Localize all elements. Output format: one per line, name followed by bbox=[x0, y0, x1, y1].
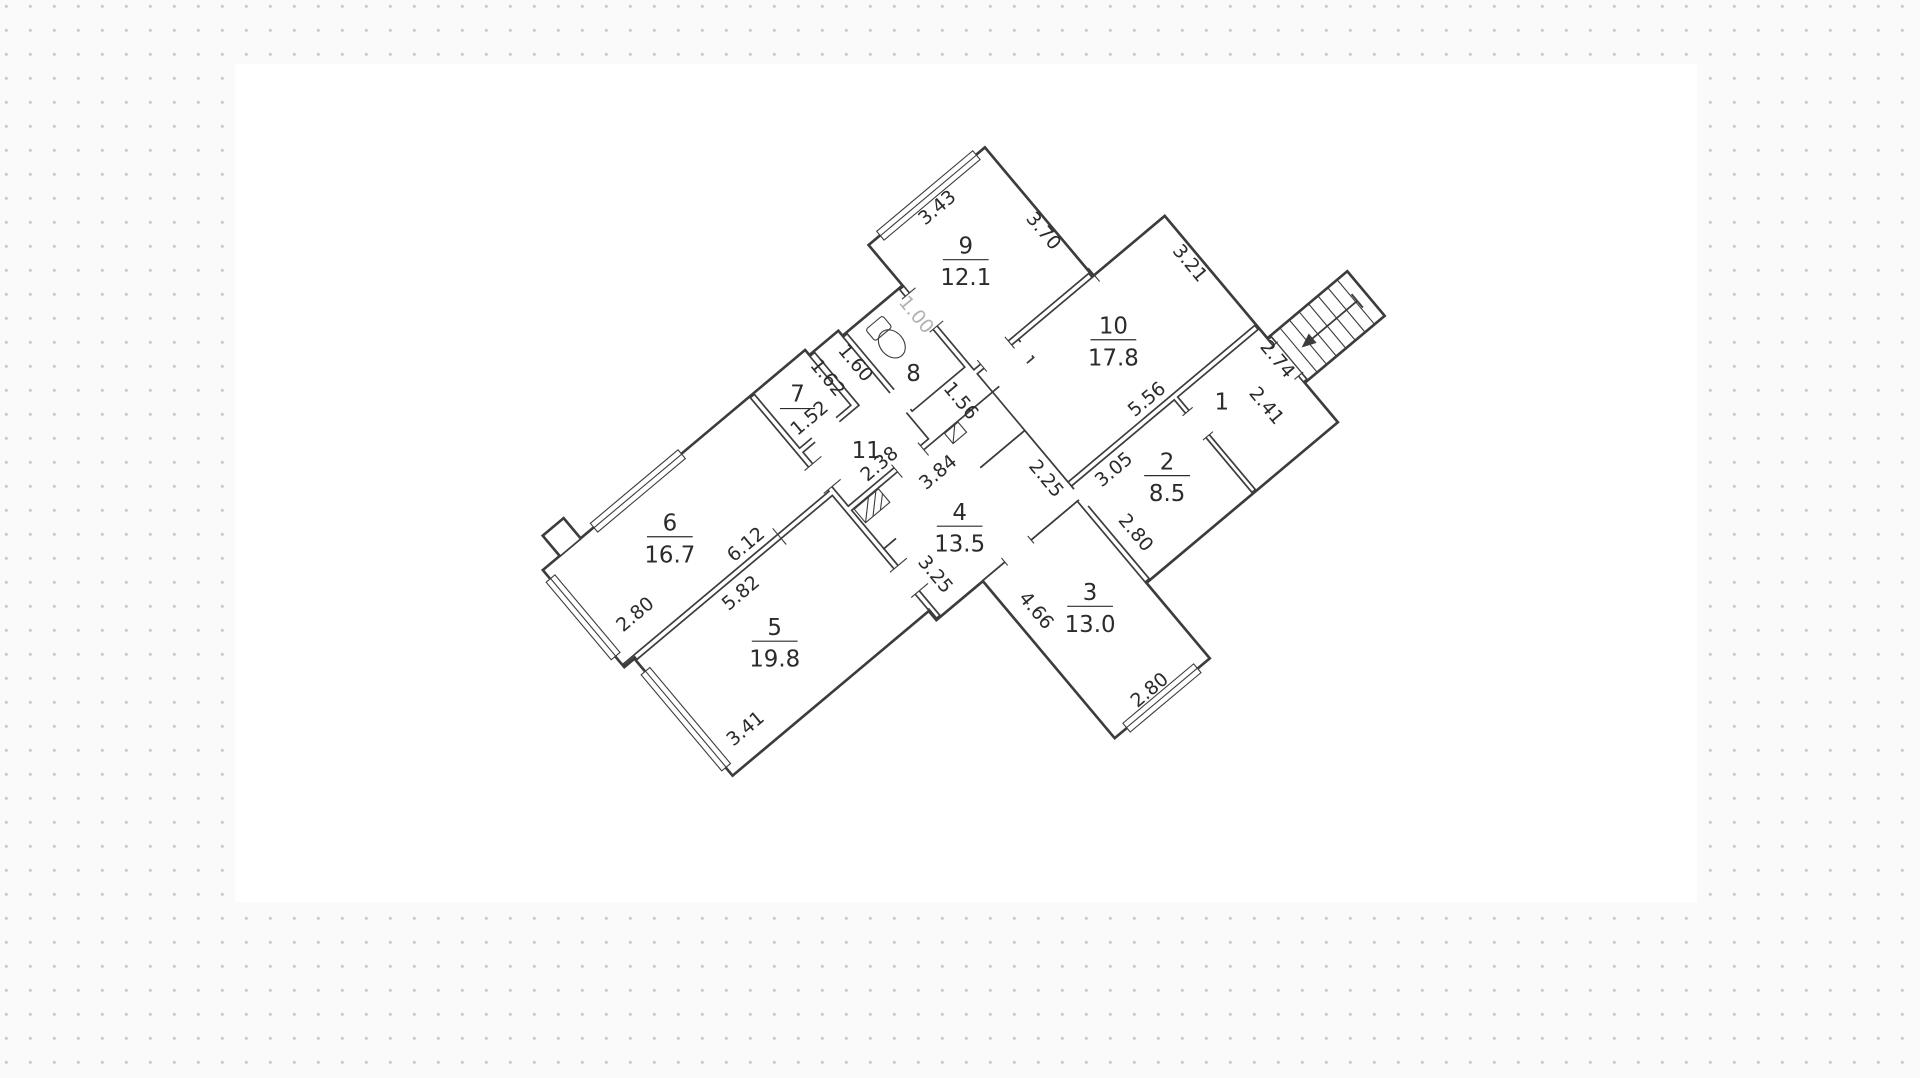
svg-text:4: 4 bbox=[952, 500, 967, 526]
lobby-1-label: 1 bbox=[1214, 390, 1229, 416]
svg-text:1: 1 bbox=[1214, 390, 1229, 416]
floorplan-svg: 6 16.7 5 19.8 9 12.1 10 17.8 4 13.5 2 8.… bbox=[0, 0, 1920, 1078]
svg-text:5: 5 bbox=[767, 615, 782, 641]
svg-text:10: 10 bbox=[1099, 314, 1128, 340]
svg-text:9: 9 bbox=[959, 234, 974, 260]
svg-text:17.8: 17.8 bbox=[1088, 345, 1139, 371]
svg-text:12.1: 12.1 bbox=[940, 265, 991, 291]
svg-text:16.7: 16.7 bbox=[644, 542, 695, 568]
svg-text:8.5: 8.5 bbox=[1149, 481, 1185, 507]
svg-text:6: 6 bbox=[663, 511, 678, 537]
svg-text:7: 7 bbox=[790, 382, 805, 408]
room-8-label: 8 bbox=[906, 361, 921, 387]
svg-text:8: 8 bbox=[906, 361, 921, 387]
svg-text:19.8: 19.8 bbox=[749, 647, 800, 673]
svg-text:3: 3 bbox=[1083, 580, 1098, 606]
svg-text:2: 2 bbox=[1160, 449, 1175, 475]
floorplan-page: 6 16.7 5 19.8 9 12.1 10 17.8 4 13.5 2 8.… bbox=[0, 0, 1920, 1078]
svg-text:13.5: 13.5 bbox=[934, 532, 985, 558]
svg-text:13.0: 13.0 bbox=[1065, 612, 1116, 638]
